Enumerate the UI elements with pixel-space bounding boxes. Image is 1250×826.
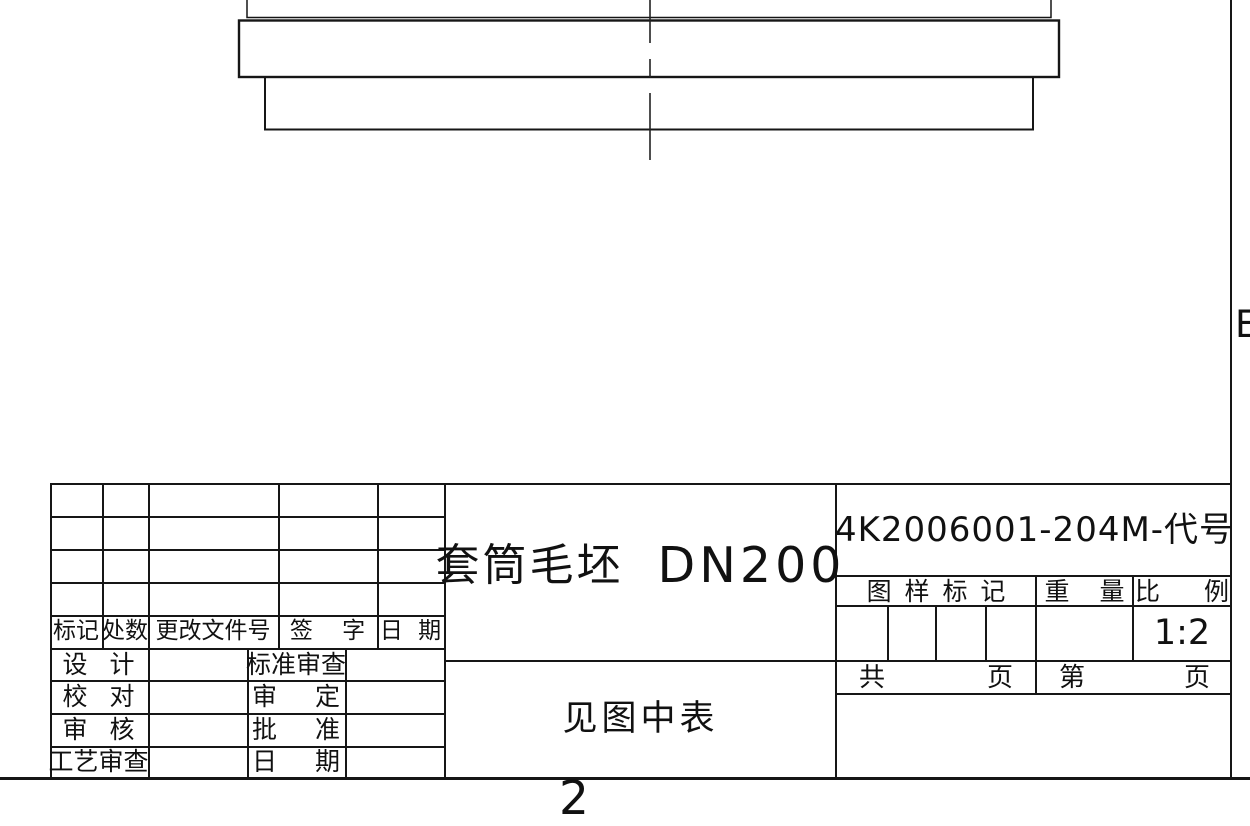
part-body-outline <box>265 77 1033 130</box>
sheet-no-label: 第 <box>1059 665 1085 691</box>
drawing-code-cell: 4K2006001-204M-代号 <box>837 485 1232 575</box>
sheets-total-unit: 页 <box>987 665 1013 691</box>
revision-header-mark: 标记 <box>50 615 102 648</box>
signoff-examined-label: 审 定 <box>247 680 345 713</box>
cad-drawing-viewport: { "frame": { "zone_label": "E", "sheet_n… <box>0 0 1250 800</box>
part-flange-outline <box>239 21 1059 78</box>
frame-bottom-border <box>0 777 1250 780</box>
revision-header-date: 日 期 <box>377 615 444 648</box>
signoff-process-review-label: 工艺审查 <box>50 746 147 777</box>
signoff-approved-label: 批 准 <box>247 713 345 746</box>
sheet-no-unit: 页 <box>1184 665 1210 691</box>
scale-value-cell: 1:2 <box>1134 607 1230 660</box>
weight-header-cell: 重 量 <box>1037 577 1132 605</box>
signoff-checked-label: 校 对 <box>50 680 147 713</box>
part-spec-text: DN200 <box>658 541 846 590</box>
part-name-text: 套筒毛坯 <box>436 544 624 588</box>
part-name-cell: 套筒毛坯 DN200 <box>446 483 835 658</box>
sheet-number: 2 <box>549 771 599 826</box>
revision-header-count: 处数 <box>102 615 148 648</box>
sheets-total-cell: 共 页 <box>837 662 1035 693</box>
sheets-total-label: 共 <box>859 665 885 691</box>
stamp-cell-line <box>887 605 889 660</box>
signoff-designed-label: 设 计 <box>50 648 147 680</box>
signoff-date-label: 日 期 <box>247 746 345 777</box>
signoff-standards-check-label: 标准审查 <box>247 648 345 680</box>
part-section-view <box>0 0 1250 210</box>
revision-row-line <box>50 582 444 584</box>
stamp-cell-line <box>985 605 987 660</box>
signoff-audited-label: 审 核 <box>50 713 147 746</box>
scale-header-cell: 比 例 <box>1134 577 1230 605</box>
stamp-cell-line <box>935 605 937 660</box>
stamp-header-cell: 图 样 标 记 <box>837 577 1035 605</box>
frame-zone-label: E <box>1235 303 1250 346</box>
revision-header-doc-no: 更改文件号 <box>148 615 278 648</box>
revision-header-signature: 签 字 <box>278 615 377 648</box>
pages-row-bottom-line <box>835 693 1232 695</box>
revision-row-line <box>50 516 444 518</box>
sheet-no-cell: 第 页 <box>1037 662 1232 693</box>
part-upper-hub-outline <box>247 0 1051 18</box>
material-note-cell: 见图中表 <box>446 662 835 777</box>
revision-row-line <box>50 549 444 551</box>
